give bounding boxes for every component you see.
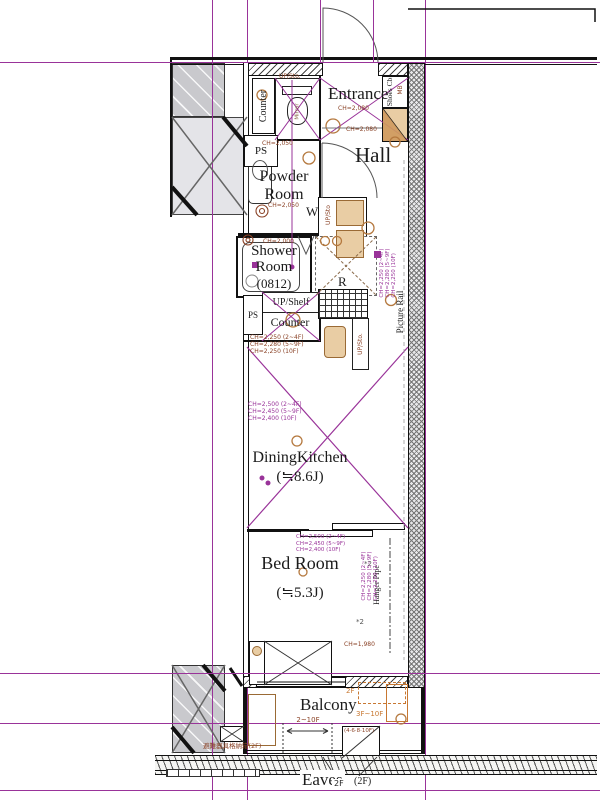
entrance-label: Entrance <box>328 84 388 104</box>
counter-top-label: Counter <box>257 76 269 136</box>
shower-label-2: Room <box>238 259 310 275</box>
meter-box-label: MB <box>396 70 404 110</box>
up-shelf-label: UP/Shelf <box>273 297 310 308</box>
entrance-door-arc <box>323 8 378 63</box>
eaves-floor-label: (2F) <box>352 776 373 787</box>
balcony-equipment-box <box>248 694 276 746</box>
pr-ch-3: CH=2,250 (10F) <box>391 248 397 297</box>
bed-room-size: (≒5.3J) <box>250 582 350 602</box>
balcony-hatch-3-10f <box>386 684 408 722</box>
purple-x-dining <box>247 347 408 528</box>
hanger-ch-set: CH=2,250 (2~4F) CH=2,280 (5~9F) CH=2,250… <box>360 541 380 611</box>
counter-ch-1: CH=2,250 (2~4F) <box>250 334 304 341</box>
bed-ch-1: CH=2,500 (2~4F) <box>296 534 345 541</box>
hall-label: Hall <box>355 143 391 168</box>
site-boundary-top <box>170 57 597 60</box>
counter-ch-2: CH=2,280 (5~9F) <box>250 341 304 348</box>
ps-mid-label: PS <box>248 310 258 320</box>
neighbor-wall-block-mid <box>172 117 247 215</box>
eaves-width-floor-label: 2F <box>332 779 346 788</box>
powder-label-1: Powder <box>238 168 330 186</box>
bed-room-label: Bed Room <box>240 552 360 574</box>
powder-ch-upper-label: CH=2,050 <box>262 140 293 147</box>
eaves-line-1 <box>155 760 597 761</box>
powder-ch-label: CH=2,050 <box>268 202 299 209</box>
sliding-door-panel-1 <box>332 523 405 530</box>
closet-shelf-lower <box>336 230 364 258</box>
grid-line-vertical-3 <box>425 0 426 800</box>
bed-ch-set: CH=2,500 (2~4F) CH=2,450 (5~9F) CH=2,400… <box>296 534 345 554</box>
dining-ch-set: CH=2,500 (2~4F) CH=2,450 (5~9F) CH=2,400… <box>248 401 302 422</box>
right-outer-wall <box>408 63 425 688</box>
fridge-label: R <box>338 274 347 290</box>
balcony-3-10f-label: 3F~10F <box>356 710 383 718</box>
kitchen-counter-label: Counter <box>258 314 322 330</box>
bed-note-2: *2 <box>356 618 364 626</box>
neighbor-outline-topright <box>408 9 595 22</box>
dk-ch-3: CH=2,400 (10F) <box>248 415 302 422</box>
grid-line-vertical-5 <box>373 0 374 63</box>
mirror-label: Mirror <box>293 92 302 132</box>
bed-closet-box <box>249 641 332 685</box>
entrance-ch-label: CH=2,080 <box>338 105 369 112</box>
shower-size-label: (0812) <box>238 276 310 291</box>
bed-closet-divider <box>264 641 265 685</box>
kitchen-storage-label: UP/Sto. <box>355 319 365 369</box>
balcony-2f-label: 2F <box>346 687 354 695</box>
closet-shelf-upper <box>336 200 364 226</box>
balcony-range-label: 2~10F <box>286 716 330 724</box>
hanger-ch-3: CH=2,250 (10F) <box>373 551 379 600</box>
floors-box-label: (4·6·8·10F) <box>344 728 374 735</box>
washer-shelf-label: UP/Sto <box>323 190 333 240</box>
grid-line-horizontal-2 <box>0 673 600 674</box>
neighbor-wall-block-bottom <box>172 665 225 753</box>
counter-ch-set: CH=2,250 (2~4F) CH=2,280 (5~9F) CH=2,250… <box>250 334 304 355</box>
shower-label-1: Shower <box>238 243 310 259</box>
evacuation-box-label: 避難器具格納箱(2F) <box>203 743 261 750</box>
dining-kitchen-label: DiningKitchen <box>235 448 365 468</box>
balcony-right-wall <box>421 688 425 754</box>
shoes-cabinet-label: Shoes Cb. <box>384 61 394 121</box>
wc-shelf-label: UP/Sto. <box>279 73 301 80</box>
dining-kitchen-size: (≒8.6J) <box>235 467 365 485</box>
kitchen-stove-icon <box>324 326 346 358</box>
dk-ch-1: CH=2,500 (2~4F) <box>248 401 302 408</box>
grid-line-vertical-1 <box>212 0 213 800</box>
evacuation-storage-box <box>220 726 244 742</box>
balcony-railing <box>243 750 425 754</box>
bed-ch-bottom: CH=1,980 <box>344 641 375 648</box>
hall-ch-label: CH=2,080 <box>346 126 377 133</box>
grid-line-vertical-4 <box>320 0 321 63</box>
grid-line-horizontal-1 <box>0 62 600 63</box>
washer-label: W <box>306 204 318 220</box>
neighbor-wall-block-top <box>172 63 225 117</box>
picture-rail-ch-set: CH=2,250 (2~4F) CH=2,280 (5~9F) CH=2,250… <box>378 238 398 308</box>
site-line-left <box>170 57 172 217</box>
up-shelf-box: UP/Shelf <box>262 292 320 313</box>
counter-ch-3: CH=2,250 (10F) <box>250 348 304 355</box>
balcony-corner-bar <box>230 668 242 686</box>
grid-line-horizontal-4 <box>0 790 600 791</box>
balcony-label: Balcony <box>300 695 357 715</box>
eaves-tile-row <box>166 769 260 777</box>
closet-knob-icon <box>252 646 262 656</box>
kitchen-sink-grid-icon <box>318 289 368 319</box>
dk-ch-2: CH=2,450 (5~9F) <box>248 408 302 415</box>
floor-plan: PS UP/Shelf PS <box>0 0 600 800</box>
